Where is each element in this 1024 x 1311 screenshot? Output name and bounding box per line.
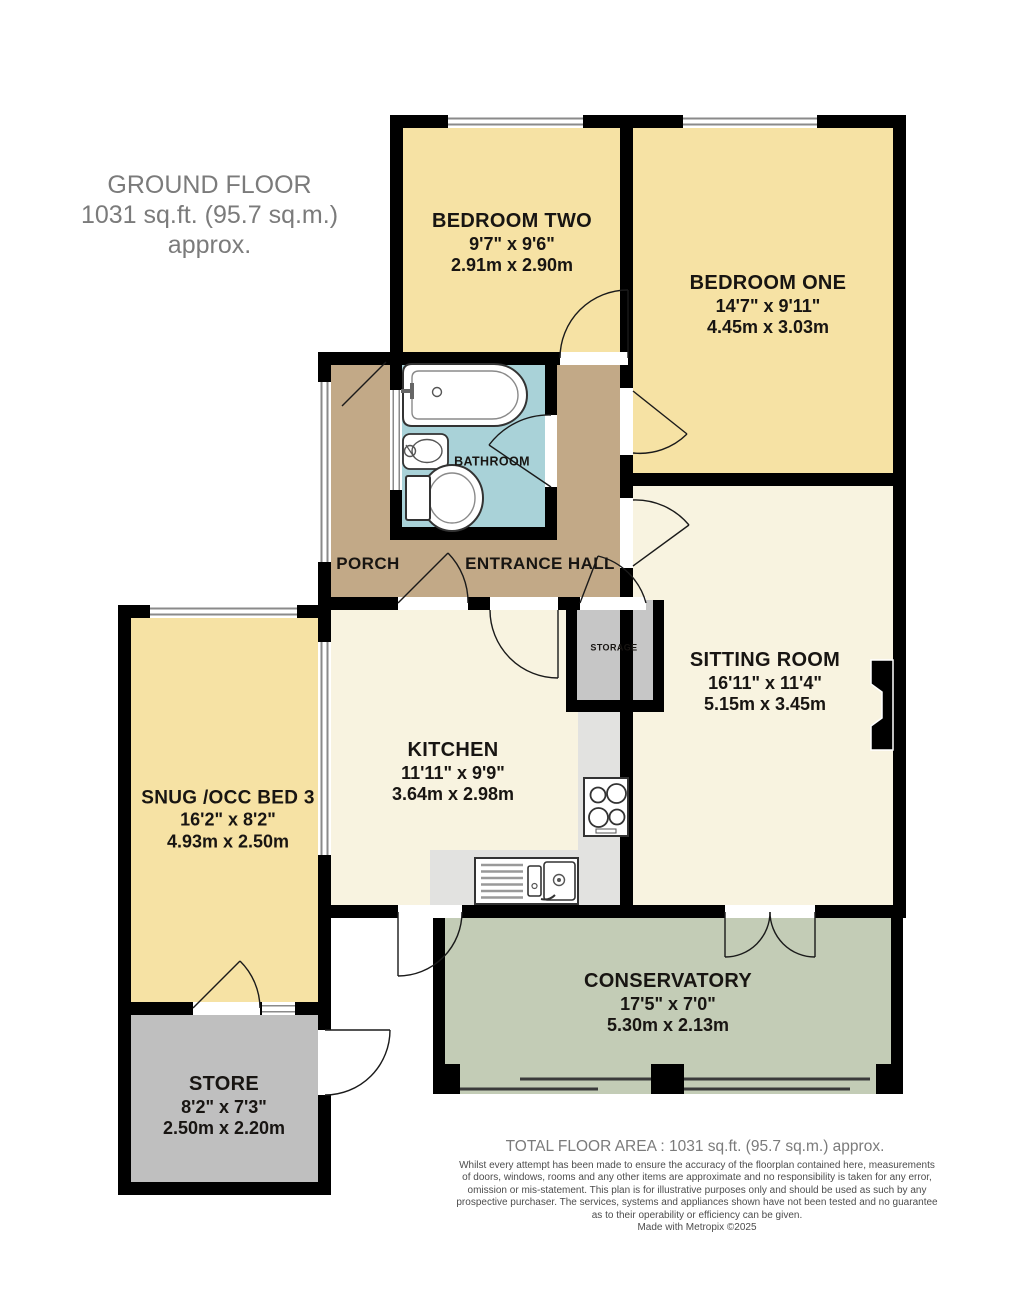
store-label: STORE 8'2" x 7'3" 2.50m x 2.20m <box>163 1073 285 1139</box>
room-dims-metric: 4.45m x 3.03m <box>690 317 847 338</box>
room-dims-metric: 3.64m x 2.98m <box>392 784 514 805</box>
kitchen-label: KITCHEN 11'11" x 9'9" 3.64m x 2.98m <box>392 739 514 805</box>
porch-label: PORCH <box>336 554 399 574</box>
room-name: STORE <box>163 1073 285 1097</box>
bathroom-label: BATHROOM <box>454 455 530 470</box>
room-name: KITCHEN <box>392 739 514 763</box>
room-name: BEDROOM TWO <box>432 210 592 234</box>
room-name: SNUG /OCC BED 3 <box>141 788 314 810</box>
conservatory-label: CONSERVATORY 17'5" x 7'0" 5.30m x 2.13m <box>584 970 752 1036</box>
floorplan-canvas: GROUND FLOOR 1031 sq.ft. (95.7 sq.m.) ap… <box>0 0 1024 1311</box>
room-dims-metric: 5.15m x 3.45m <box>690 694 840 715</box>
room-dims-imperial: 16'11" x 11'4" <box>690 673 840 694</box>
room-dims-metric: 2.50m x 2.20m <box>163 1118 285 1139</box>
room-name: BEDROOM ONE <box>690 272 847 296</box>
floor-title-line1: GROUND FLOOR <box>47 170 372 200</box>
entrance-hall-label: ENTRANCE HALL <box>465 554 615 574</box>
total-floor-area: TOTAL FLOOR AREA : 1031 sq.ft. (95.7 sq.… <box>506 1138 885 1156</box>
room-dims-metric: 4.93m x 2.50m <box>141 831 314 852</box>
kitchen-sink <box>475 858 578 904</box>
room-name: SITTING ROOM <box>690 649 840 673</box>
bathtub <box>401 364 527 426</box>
storage-label: STORAGE <box>590 643 637 654</box>
basin <box>403 434 448 469</box>
room-dims-imperial: 8'2" x 7'3" <box>163 1097 285 1118</box>
room-dims-metric: 2.91m x 2.90m <box>432 255 592 276</box>
floor-title: GROUND FLOOR 1031 sq.ft. (95.7 sq.m.) ap… <box>47 170 372 260</box>
floor-title-line2: 1031 sq.ft. (95.7 sq.m.) approx. <box>47 200 372 260</box>
hob <box>584 778 628 836</box>
room-dims-imperial: 9'7" x 9'6" <box>432 234 592 255</box>
room-dims-imperial: 17'5" x 7'0" <box>584 994 752 1015</box>
room-dims-metric: 5.30m x 2.13m <box>584 1015 752 1036</box>
disclaimer-text: Whilst every attempt has been made to en… <box>417 1160 977 1222</box>
bedroom-two-label: BEDROOM TWO 9'7" x 9'6" 2.91m x 2.90m <box>432 210 592 276</box>
storage-area <box>566 600 664 712</box>
bedroom-one-label: BEDROOM ONE 14'7" x 9'11" 4.45m x 3.03m <box>690 272 847 338</box>
sitting-room-label: SITTING ROOM 16'11" x 11'4" 5.15m x 3.45… <box>690 649 840 715</box>
snug-label: SNUG /OCC BED 3 16'2" x 8'2" 4.93m x 2.5… <box>141 788 314 853</box>
credit-line: Made with Metropix ©2025 <box>417 1222 977 1233</box>
room-dims-imperial: 16'2" x 8'2" <box>141 810 314 831</box>
room-name: CONSERVATORY <box>584 970 752 994</box>
room-dims-imperial: 11'11" x 9'9" <box>392 763 514 784</box>
room-dims-imperial: 14'7" x 9'11" <box>690 296 847 317</box>
